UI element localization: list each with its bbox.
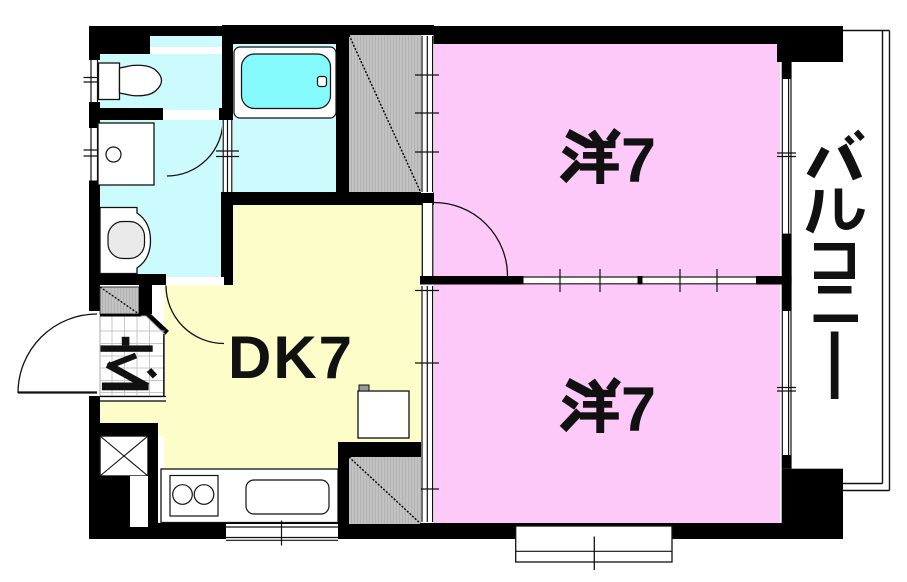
svg-text:7: 7 bbox=[621, 126, 656, 196]
svg-text:DK7: DK7 bbox=[228, 324, 354, 391]
svg-text:7: 7 bbox=[621, 375, 656, 445]
